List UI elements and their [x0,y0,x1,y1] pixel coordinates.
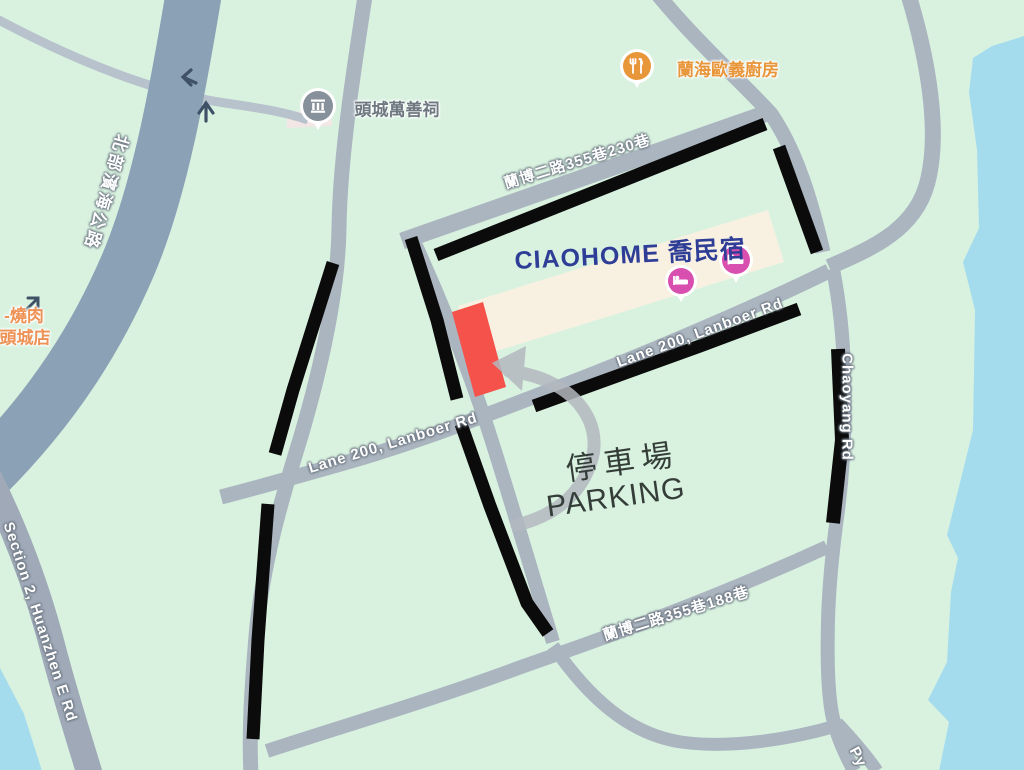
map-graphics [0,0,1024,770]
map-canvas[interactable]: 北部濱海公路 蘭博二路355巷230巷 頭城萬善祠 蘭海歐義廚房 -燒肉 頭城店… [0,0,1024,770]
temple-glyph [311,100,325,113]
restaurant-icon [623,52,651,80]
